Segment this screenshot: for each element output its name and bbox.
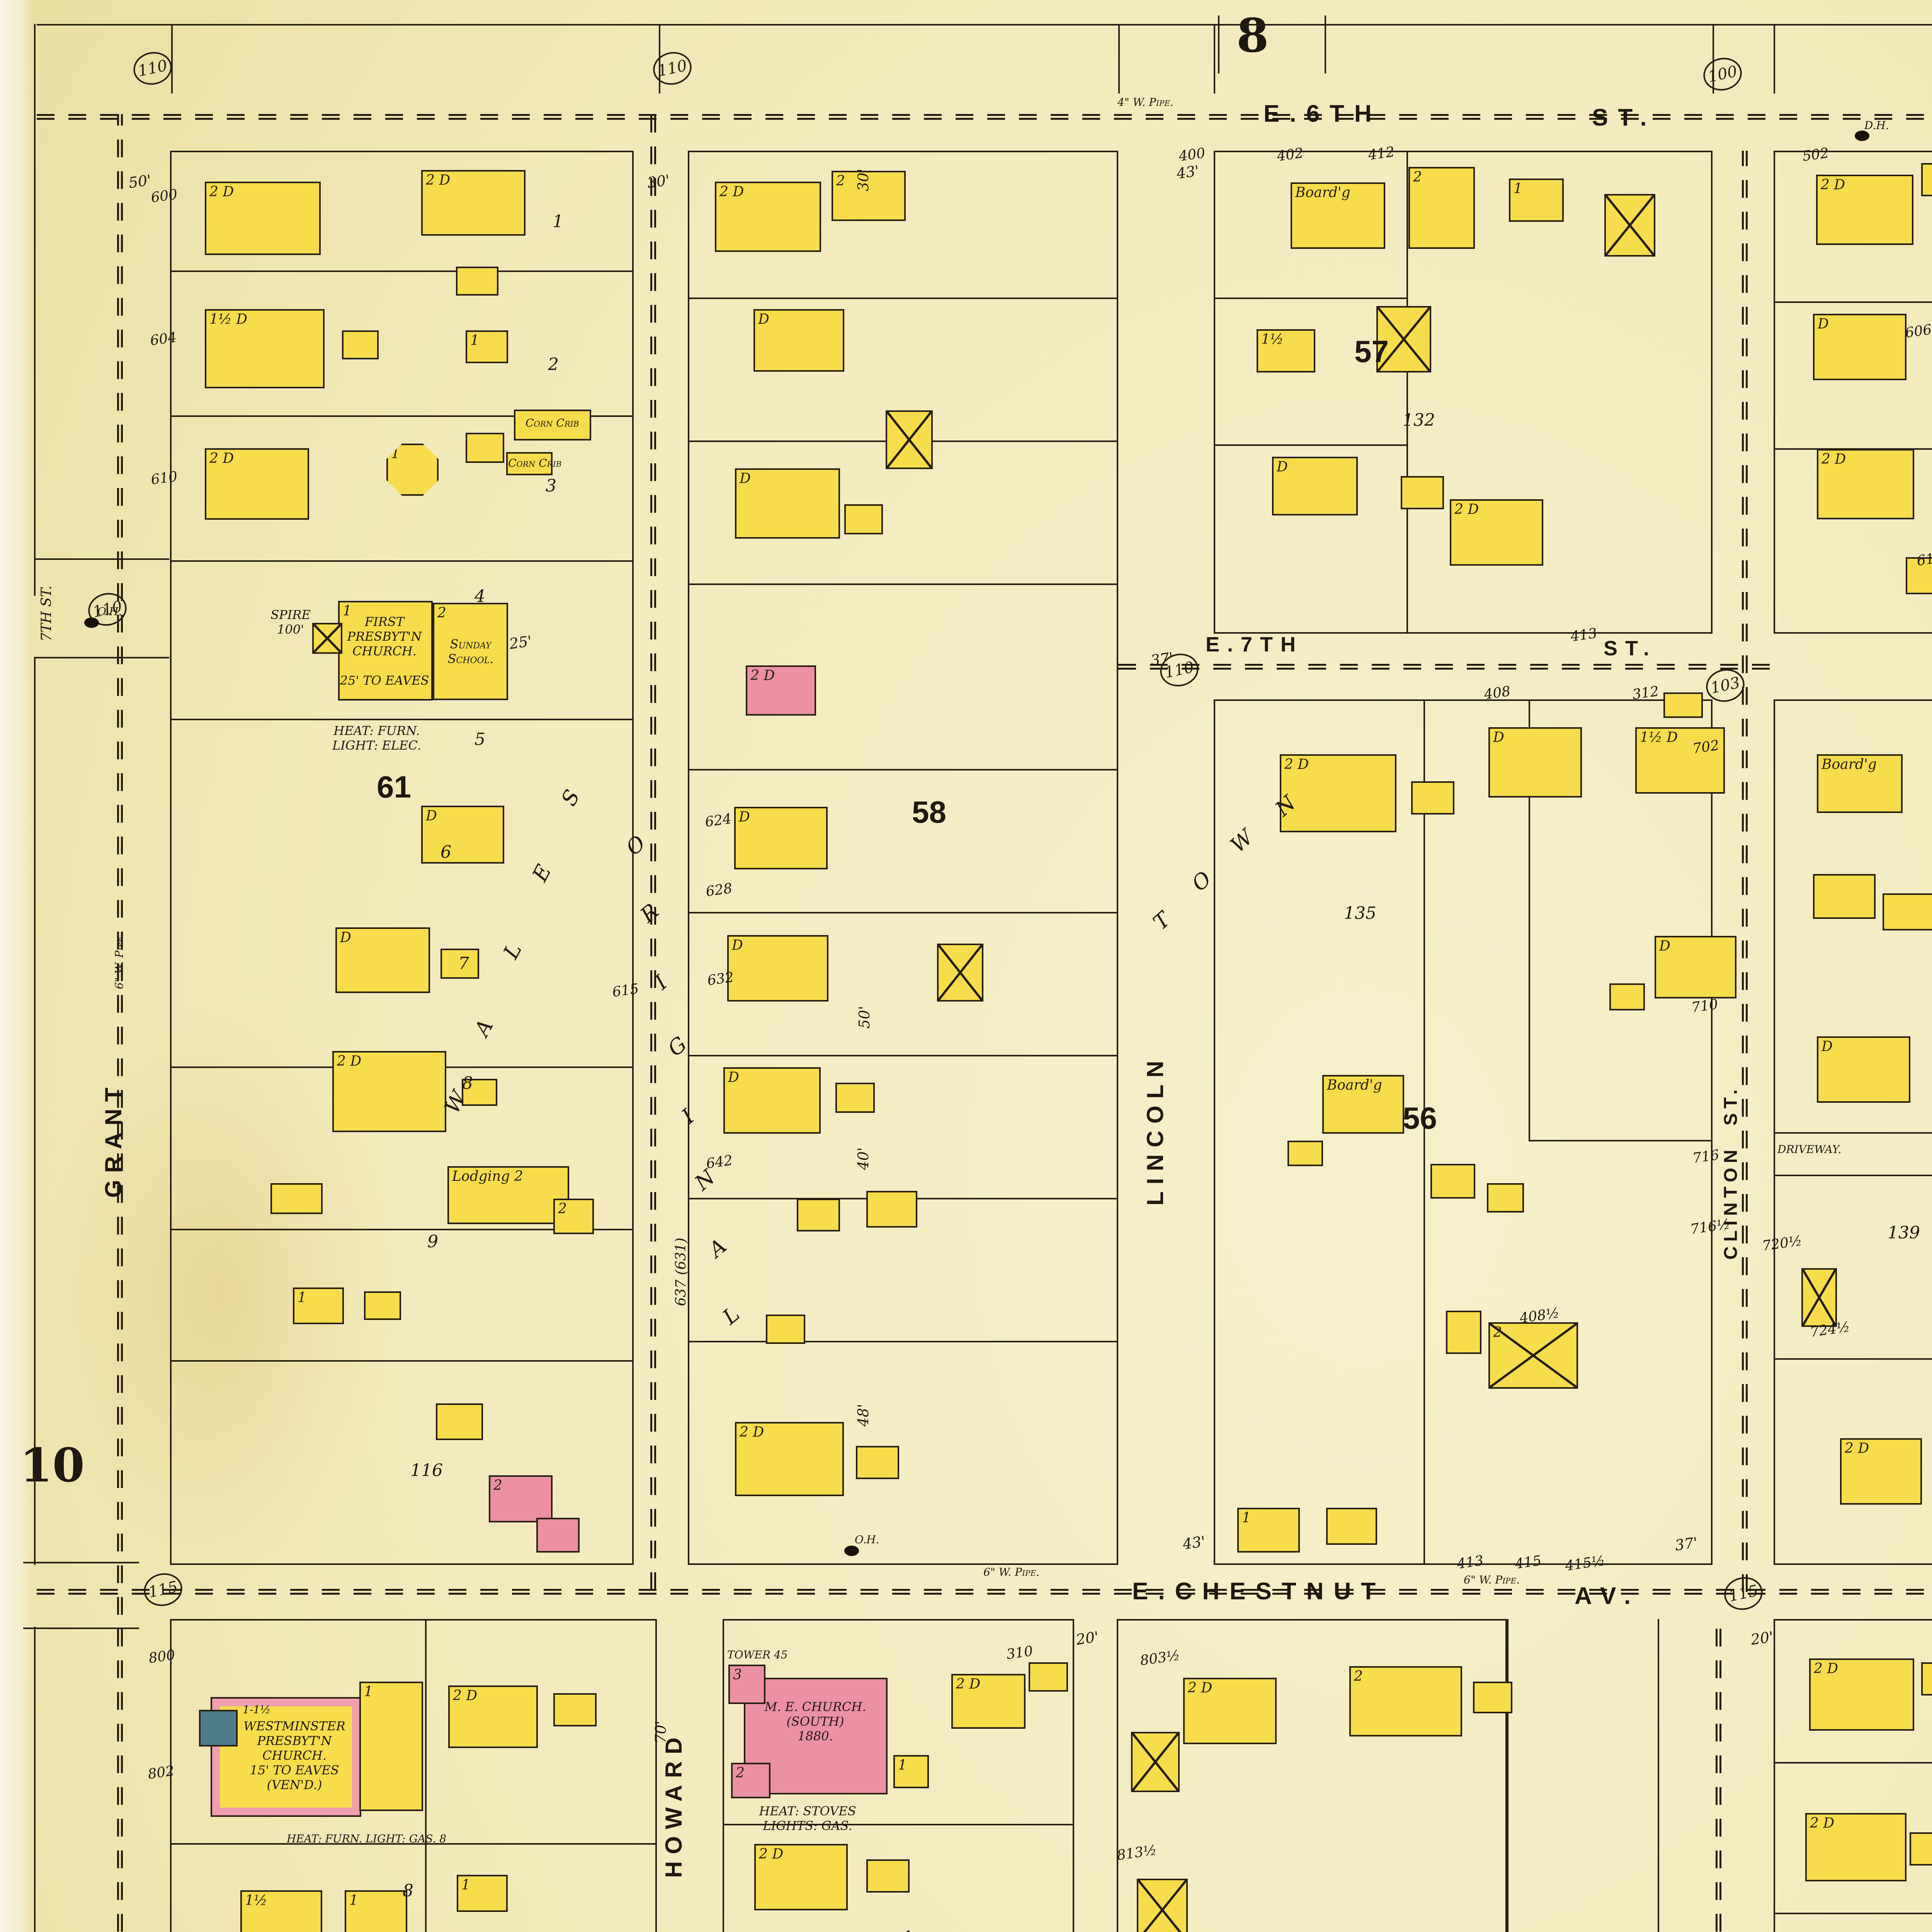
- building-footprint: 1: [466, 330, 508, 363]
- lot-line: [34, 657, 169, 658]
- building-footprint: [270, 1183, 323, 1214]
- building-label: 2 D: [1814, 1661, 1838, 1677]
- lot-line: [171, 24, 173, 94]
- building-footprint: 2: [1488, 1322, 1578, 1389]
- lot-line: [1774, 24, 1775, 94]
- map-text: 1: [553, 212, 563, 231]
- building-footprint: [1609, 983, 1645, 1010]
- building-footprint: [1910, 1832, 1932, 1866]
- building-footprint: 2 D: [1840, 1438, 1922, 1505]
- map-text: 8: [403, 1881, 413, 1901]
- building-footprint: [553, 1693, 597, 1726]
- building-footprint: [1473, 1682, 1512, 1713]
- building-label: 2 D: [209, 184, 234, 200]
- building-footprint: [1029, 1662, 1068, 1692]
- building-footprint: 1½ D: [205, 309, 325, 388]
- map-text: ST.: [1592, 105, 1657, 130]
- lot-line: [1325, 15, 1326, 73]
- building-label: 3: [733, 1667, 742, 1683]
- building-footprint: 2 D: [332, 1051, 446, 1132]
- building-label: 2: [836, 173, 845, 189]
- hydrant-dot: [1855, 131, 1869, 141]
- building-footprint: [1801, 1268, 1837, 1327]
- building-footprint: [199, 1710, 238, 1747]
- map-text: AV.: [1575, 1583, 1641, 1609]
- building-footprint: D: [1488, 727, 1582, 798]
- building-label: 2 D: [337, 1053, 361, 1069]
- building-footprint: 1½: [240, 1890, 322, 1932]
- map-text: WESTMINSTER PRESBYT'N CHURCH. 15' TO EAV…: [243, 1719, 345, 1792]
- street-width-circle: 115: [141, 1570, 185, 1610]
- building-footprint: D: [723, 1067, 821, 1134]
- building-footprint: 2 D: [1809, 1658, 1914, 1731]
- building-footprint: [1131, 1732, 1180, 1792]
- building-footprint: 2: [553, 1199, 594, 1234]
- building-footprint: [844, 504, 883, 534]
- map-text: 4: [474, 587, 485, 606]
- building-label: 2: [558, 1201, 567, 1217]
- building-footprint: 1: [345, 1890, 407, 1932]
- building-footprint: 2 D: [735, 1422, 844, 1496]
- building-label: D: [728, 1070, 739, 1085]
- building-label: D: [1821, 1039, 1833, 1054]
- map-text: D.H.: [1864, 119, 1889, 132]
- building-footprint: 2 D: [715, 182, 821, 252]
- map-text: 116: [410, 1461, 443, 1480]
- lot-line: [37, 24, 1932, 26]
- map-text: 37': [1674, 1534, 1699, 1554]
- building-footprint: 2 D: [1450, 499, 1543, 566]
- building-footprint: [342, 330, 379, 359]
- building-label: 2 D: [750, 668, 775, 684]
- building-footprint: [1326, 1508, 1377, 1545]
- building-label: D: [1493, 730, 1504, 745]
- building-footprint: 1: [386, 444, 439, 496]
- building-label: 2 D: [1454, 502, 1479, 517]
- map-text: DRIVEWAY.: [1777, 1143, 1842, 1156]
- building-label: 1½: [1261, 332, 1284, 347]
- map-text: HEAT: FURN. LIGHT: ELEC.: [332, 723, 421, 753]
- map-text: SPIRE 100': [270, 607, 311, 637]
- building-footprint: [1430, 1164, 1475, 1199]
- map-text: 6" W. Pipe.: [983, 1566, 1039, 1578]
- building-footprint: 2 D: [1816, 175, 1913, 245]
- map-text: 43': [1182, 1533, 1206, 1553]
- building-label: 1½: [245, 1893, 267, 1908]
- map-text: 132: [1403, 410, 1435, 430]
- adjacent-sheet-top: 8: [1236, 12, 1269, 60]
- street-width-circle: 115: [1721, 1574, 1765, 1614]
- building-label: 2 D: [1821, 177, 1845, 193]
- building-label: 2: [1493, 1325, 1502, 1340]
- building-footprint: [835, 1083, 875, 1113]
- adjacent-sheet-left: 10: [20, 1441, 85, 1490]
- building-label: D: [739, 809, 750, 825]
- map-text: 413: [1570, 625, 1598, 645]
- building-label: 2: [493, 1478, 502, 1493]
- map-text: 7TH ST.: [39, 585, 54, 641]
- building-footprint: 1: [359, 1682, 423, 1811]
- map-text: 30': [646, 172, 671, 192]
- building-label: 2 D: [1845, 1440, 1869, 1456]
- building-footprint: [1487, 1183, 1524, 1213]
- map-text: 6" W. Pipe.: [113, 933, 126, 989]
- building-label: 2 D: [1821, 451, 1846, 467]
- building-label: 1: [364, 1684, 373, 1700]
- map-text: M. E. CHURCH. (SOUTH) 1880.: [765, 1699, 866, 1743]
- lot-line: [34, 24, 36, 596]
- building-footprint: D: [421, 806, 504, 864]
- building-label: 1: [1242, 1510, 1251, 1526]
- building-footprint: [856, 1446, 899, 1479]
- building-footprint: [1921, 163, 1932, 196]
- building-footprint: [1446, 1311, 1481, 1354]
- map-text: 413: [1456, 1553, 1485, 1572]
- building-footprint: [312, 623, 342, 654]
- map-text: 637 (631): [673, 1238, 689, 1306]
- map-text: GRANT: [101, 1081, 126, 1198]
- map-text: 58: [912, 796, 946, 828]
- map-text: 30': [855, 168, 872, 191]
- map-text: 5: [474, 730, 485, 749]
- building-label: 1: [470, 333, 479, 349]
- street-centerline: [1716, 1619, 1721, 1932]
- building-footprint: 2 D: [1280, 754, 1396, 832]
- map-text: FIRST PRESBYT'N CHURCH. 25' TO EAVES: [340, 614, 429, 688]
- building-footprint: [937, 944, 983, 1002]
- street-width-circle: 110: [650, 49, 694, 88]
- building-label: 1: [349, 1893, 358, 1908]
- building-footprint: Board'g: [1817, 754, 1903, 813]
- building-footprint: [1287, 1141, 1323, 1166]
- map-text: HEAT: STOVES LIGHTS: GAS.: [759, 1804, 856, 1833]
- map-text: 40': [855, 1147, 872, 1170]
- building-footprint: D: [727, 935, 828, 1002]
- building-footprint: Board'g: [1291, 182, 1385, 249]
- building-label: 1½ D: [1640, 730, 1678, 745]
- building-label: D: [1277, 459, 1288, 475]
- building-footprint: 1: [1509, 179, 1564, 222]
- map-text: O: [1187, 866, 1216, 896]
- map-text: 3: [546, 476, 556, 496]
- building-footprint: 1: [293, 1287, 344, 1324]
- building-label: 2 D: [1284, 757, 1309, 772]
- building-footprint: 2 D: [746, 665, 816, 716]
- building-label: 1: [461, 1877, 470, 1893]
- building-label: D: [758, 311, 769, 327]
- lot-line: [1507, 1619, 1509, 1932]
- street-width-circle: 100: [1700, 54, 1745, 94]
- building-label: D: [732, 937, 743, 953]
- map-text: 50': [856, 1006, 873, 1029]
- map-text: HEAT: FURN. LIGHT: GAS. 8: [287, 1832, 446, 1845]
- building-label: D: [740, 471, 751, 486]
- map-text: LINCOLN: [1143, 1054, 1167, 1206]
- building-footprint: Board'g: [1322, 1075, 1404, 1134]
- map-text: 415: [1514, 1553, 1543, 1572]
- building-footprint: 1: [893, 1755, 929, 1788]
- map-text: 135: [1344, 903, 1376, 923]
- map-text: 400: [1178, 145, 1206, 164]
- map-text: 25': [508, 633, 533, 653]
- building-footprint: 1½ D: [1635, 727, 1725, 794]
- building-label: Board'g: [1295, 185, 1350, 201]
- map-text: E.6TH: [1264, 101, 1382, 126]
- lot-line: [1214, 24, 1215, 94]
- building-footprint: 2: [489, 1475, 553, 1522]
- building-footprint: 2 D: [1183, 1678, 1277, 1744]
- map-text: 7: [458, 954, 469, 973]
- lot-line: [1218, 15, 1219, 73]
- building-footprint: [466, 433, 504, 463]
- map-text: 20': [1075, 1628, 1100, 1648]
- building-footprint: 2: [1408, 167, 1475, 249]
- map-text: 9: [427, 1232, 438, 1252]
- building-label: 2 D: [426, 172, 450, 188]
- building-footprint: 1: [457, 1875, 508, 1912]
- building-footprint: D: [735, 468, 840, 539]
- map-text: 4" W. Pipe.: [1117, 96, 1173, 109]
- building-footprint: 2 D: [205, 182, 321, 255]
- building-footprint: 2 D: [754, 1844, 848, 1910]
- building-footprint: [1883, 893, 1932, 930]
- map-text: 8: [462, 1073, 473, 1093]
- building-footprint: 2: [731, 1763, 770, 1798]
- building-footprint: 2 D: [205, 448, 309, 520]
- building-label: 2 D: [1810, 1815, 1834, 1831]
- building-label: 1: [298, 1290, 306, 1306]
- map-text: HOWARD: [662, 1731, 686, 1878]
- map-text: 6" W. Pipe.: [1464, 1573, 1520, 1586]
- building-footprint: 1½: [1257, 329, 1315, 372]
- building-label: 2 D: [1188, 1680, 1212, 1696]
- building-footprint: [1663, 692, 1703, 718]
- map-text: 710: [1690, 996, 1719, 1015]
- map-text: Corn Crib: [508, 457, 561, 469]
- building-footprint: [797, 1199, 840, 1231]
- street-centerline: [117, 114, 123, 1932]
- building-footprint: 2 D: [421, 170, 526, 236]
- building-footprint: [1137, 1879, 1188, 1932]
- map-text: 57: [1354, 335, 1389, 368]
- hydrant-dot: [84, 617, 99, 628]
- building-footprint: 2 D: [951, 1674, 1026, 1729]
- building-label: Board'g: [1327, 1077, 1382, 1093]
- building-footprint: D: [335, 927, 430, 993]
- building-footprint: [1813, 874, 1876, 919]
- building-footprint: [1604, 194, 1655, 257]
- building-footprint: [766, 1315, 805, 1344]
- city-block-outline: [1774, 699, 1932, 1565]
- building-label: 2 D: [740, 1424, 764, 1440]
- building-label: 2 D: [719, 184, 744, 200]
- building-footprint: [1401, 476, 1444, 509]
- building-label: 2 D: [956, 1676, 980, 1692]
- lot-line: [34, 657, 36, 1565]
- building-footprint: [866, 1859, 910, 1893]
- building-footprint: D: [1655, 936, 1736, 998]
- sanborn-map-carthage-sheet-11: OCT. 1902 CARTHAGE MO. 11 8 10: [0, 0, 1932, 1932]
- building-label: D: [1818, 316, 1829, 332]
- building-footprint: D: [1272, 457, 1358, 515]
- building-label: 1½ D: [209, 311, 247, 327]
- street-centerline: [1118, 664, 1774, 670]
- building-footprint: [536, 1518, 580, 1553]
- building-label: 2: [1413, 169, 1422, 185]
- building-label: 2 D: [759, 1846, 783, 1862]
- building-label: 1: [898, 1757, 907, 1773]
- building-label: 2: [437, 605, 446, 621]
- map-text: 43': [1175, 162, 1200, 182]
- map-text: ST.: [1604, 638, 1657, 660]
- building-footprint: D: [734, 807, 828, 869]
- lot-line: [34, 1627, 36, 1932]
- building-footprint: [1921, 1662, 1932, 1696]
- map-text: 48': [855, 1404, 872, 1427]
- building-label: D: [1659, 938, 1670, 954]
- building-footprint: 2 D: [1817, 449, 1914, 519]
- map-text: 139: [1888, 1223, 1920, 1243]
- building-footprint: 2 D: [1805, 1813, 1906, 1881]
- map-text: 61: [377, 771, 411, 803]
- map-text: Corn Crib: [526, 417, 579, 429]
- map-text: 1-1½: [243, 1703, 270, 1716]
- building-footprint: D: [1813, 314, 1906, 380]
- map-text: E.7TH: [1206, 634, 1303, 656]
- map-text: 20': [1750, 1628, 1774, 1648]
- building-footprint: [364, 1291, 401, 1320]
- map-text: 6: [440, 842, 451, 862]
- building-footprint: [436, 1403, 483, 1440]
- map-text: 2: [548, 355, 559, 374]
- street-centerline: [650, 116, 656, 1590]
- street-centerline: [37, 1589, 1932, 1595]
- street-width-circle: 110: [130, 49, 175, 88]
- map-text: O.H.: [855, 1533, 879, 1546]
- map-text: 615: [611, 981, 640, 1000]
- building-footprint: 2 D: [448, 1685, 538, 1748]
- map-text: 50': [128, 172, 152, 192]
- building-label: 2 D: [209, 451, 234, 466]
- lot-line: [1118, 24, 1120, 94]
- building-footprint: D: [1817, 1036, 1910, 1103]
- building-footprint: 1: [1237, 1508, 1300, 1553]
- map-text: R: [636, 899, 663, 927]
- hydrant-dot: [844, 1546, 859, 1556]
- map-text: Sunday School.: [448, 637, 494, 666]
- building-footprint: 2: [1349, 1666, 1462, 1736]
- lot-line: [1658, 1619, 1659, 1932]
- map-text: 716: [1692, 1147, 1720, 1166]
- building-footprint: Lodging 2: [447, 1166, 569, 1224]
- building-label: 2: [736, 1765, 745, 1781]
- building-footprint: [866, 1191, 917, 1228]
- building-label: D: [426, 808, 437, 824]
- map-text: CLINTON ST.: [1721, 1085, 1741, 1260]
- building-label: 1: [1514, 181, 1522, 197]
- map-text: E.CHESTNUT: [1132, 1579, 1386, 1604]
- street-centerline: [1742, 151, 1748, 1592]
- building-label: 2 D: [453, 1688, 477, 1704]
- building-footprint: [1411, 781, 1454, 815]
- building-footprint: 3: [728, 1665, 765, 1704]
- map-text: T: [1148, 907, 1175, 935]
- building-label: Lodging 2: [452, 1168, 523, 1184]
- map-text: 56: [1403, 1102, 1437, 1134]
- map-text: TOWER 45: [727, 1648, 787, 1661]
- map-text: 70': [652, 1721, 669, 1743]
- map-text: G: [663, 1032, 692, 1061]
- building-label: D: [340, 930, 351, 946]
- building-label: 2: [1354, 1668, 1363, 1684]
- building-label: Board'g: [1821, 757, 1877, 772]
- lot-line: [34, 558, 169, 560]
- building-footprint: D: [753, 309, 844, 372]
- building-footprint: [886, 410, 933, 469]
- building-footprint: [456, 267, 498, 296]
